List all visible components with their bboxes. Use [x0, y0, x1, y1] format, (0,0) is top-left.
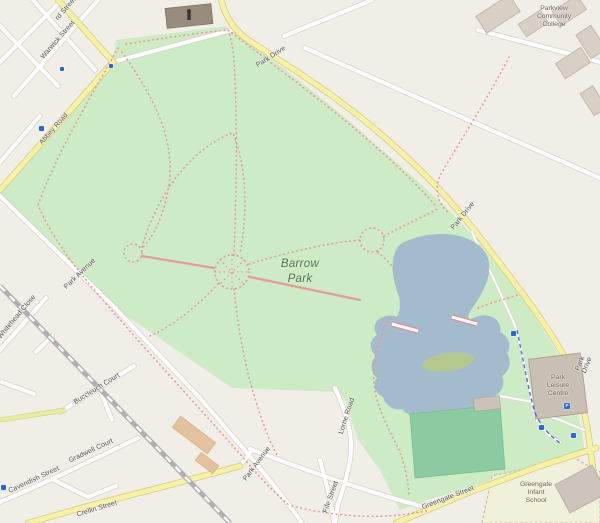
map-tiles — [0, 0, 600, 523]
bowling-green-pitch — [410, 405, 505, 478]
map-canvas[interactable]: rd Street Warwick Street Abbey Road Park… — [0, 0, 600, 523]
map-marker-icon — [511, 331, 516, 336]
parking-icon: P — [564, 403, 570, 409]
traffic-signal-icon — [60, 67, 64, 71]
map-marker-icon — [1, 485, 6, 490]
map-marker-icon — [39, 126, 44, 131]
monument-icon — [187, 9, 191, 20]
monument-building — [165, 4, 213, 29]
map-marker-icon — [571, 433, 576, 438]
college-buildings — [476, 0, 600, 116]
pavilion-building — [473, 396, 500, 412]
railway-bridge — [172, 416, 219, 473]
map-marker-icon — [539, 425, 544, 430]
leisure-centre-building — [529, 353, 588, 419]
traffic-signal-icon — [109, 64, 113, 68]
residential-lime-road — [0, 410, 66, 420]
